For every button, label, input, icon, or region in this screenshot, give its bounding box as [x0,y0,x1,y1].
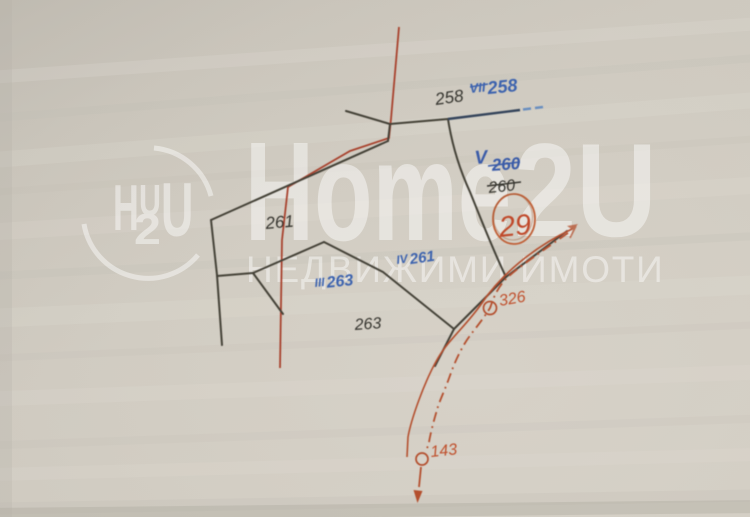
svg-text:2: 2 [134,204,161,253]
svg-text:261: 261 [264,212,295,233]
svg-text:U: U [161,169,193,253]
svg-text:2U: 2U [514,117,657,265]
svg-text:260: 260 [487,177,516,197]
svg-text:29: 29 [496,209,532,244]
svg-text:263: 263 [353,315,382,334]
svg-text:НЕДВИЖИМИ ИМОТИ: НЕДВИЖИМИ ИМОТИ [246,249,665,290]
svg-text:Home: Home [245,113,511,271]
svg-text:143: 143 [430,441,458,461]
